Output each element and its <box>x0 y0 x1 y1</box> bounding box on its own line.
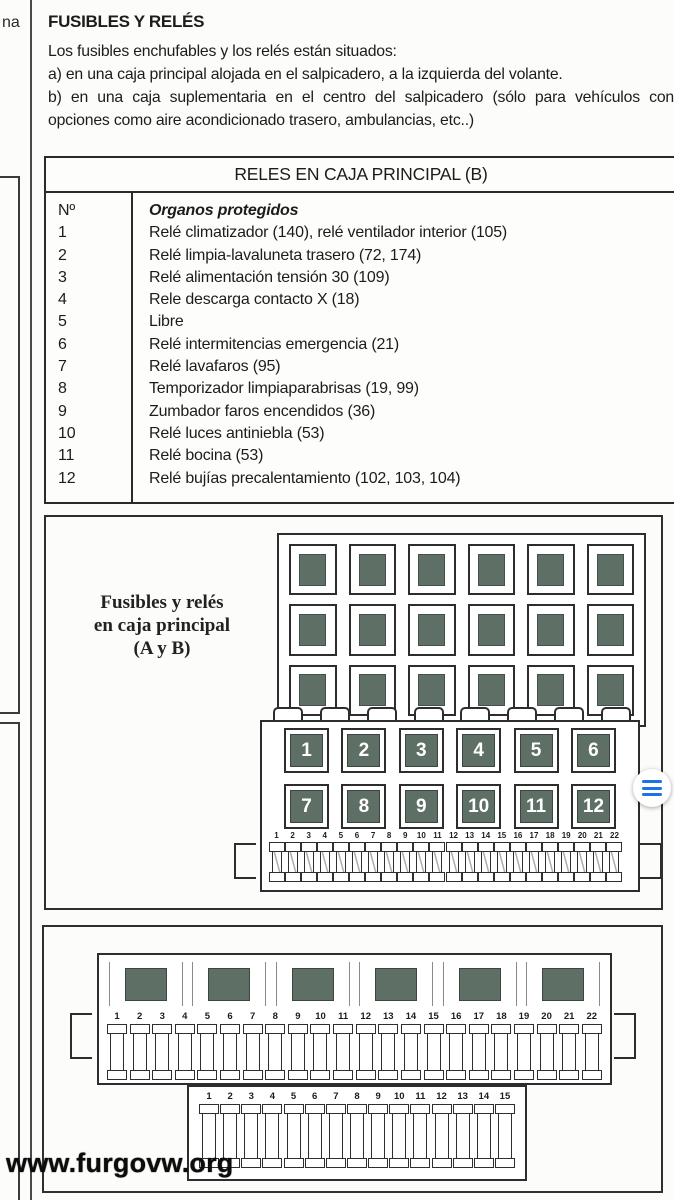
fuse-slot: 4 <box>317 831 332 882</box>
relay-slot: 10 <box>456 784 501 829</box>
relay-block-b: 123456 789101112 1 2 3 4 <box>260 720 640 892</box>
table-row: 5 Libre <box>46 311 674 333</box>
table-row: 7 Relé lavafaros (95) <box>46 356 674 378</box>
fuse-icon <box>415 842 427 882</box>
fuse-slot: 11 <box>430 831 445 882</box>
fuse-slot: 18 <box>543 831 558 882</box>
fuse-icon <box>403 1024 419 1080</box>
fuse-icon <box>539 1024 555 1080</box>
fuse-slot: 22 <box>582 1011 602 1080</box>
left-column-box-fragment <box>0 176 20 714</box>
relay-description-cell: Relé bujías precalentamiento (102, 103, … <box>131 468 674 490</box>
diagram-caption: Fusibles y relés en caja principal (A y … <box>66 591 258 660</box>
fuse-icon <box>245 1024 261 1080</box>
fuse-slot: 7 <box>243 1011 263 1080</box>
relay-number-cell: 12 <box>46 468 131 490</box>
fuse-slot: 6 <box>220 1011 240 1080</box>
fuse-slot: 10 <box>389 1091 409 1168</box>
mount-bracket-right <box>640 843 662 879</box>
fuse-icon <box>512 842 524 882</box>
scanned-manual-page: na FUSIBLES Y RELÉS Los fusibles enchufa… <box>0 0 674 1200</box>
fuse-icon <box>380 1024 396 1080</box>
table-row: 12 Relé bujías precalentamiento (102, 10… <box>46 468 674 490</box>
mount-bracket-left <box>70 1013 92 1059</box>
intro-line: opciones como aire acondicionado trasero… <box>48 109 674 132</box>
fuse-slot: 4 <box>175 1011 195 1080</box>
fuse-slot: 1 <box>107 1011 127 1080</box>
fuse-slot: 14 <box>474 1091 494 1168</box>
fuse-slot: 12 <box>446 831 461 882</box>
section-title: FUSIBLES Y RELÉS <box>48 12 204 32</box>
fuse-icon <box>349 1104 365 1168</box>
fuse-slot: 16 <box>446 1011 466 1080</box>
relay-number-cell: 9 <box>46 401 131 423</box>
fuse-icon <box>312 1024 328 1080</box>
table-row: 4 Rele descarga contacto X (18) <box>46 289 674 311</box>
relay-description-cell: Relé luces antiniebla (53) <box>131 423 674 445</box>
fuse-icon <box>271 842 283 882</box>
relay-slot: 1 <box>284 728 329 773</box>
fuse-slot: 3 <box>301 831 316 882</box>
hamburger-menu-icon <box>642 780 662 783</box>
relay-description-cell: Relé limpia-lavaluneta trasero (72, 174) <box>131 245 674 267</box>
fuse-icon <box>544 842 556 882</box>
fuse-icon <box>290 1024 306 1080</box>
fuse-slot: 2 <box>130 1011 150 1080</box>
fuse-icon <box>351 842 363 882</box>
fuse-strip-unit-upper: 1 2 3 4 5 6 7 <box>97 953 612 1085</box>
relay-number-cell: 7 <box>46 356 131 378</box>
fuse-slot: 5 <box>284 1091 304 1168</box>
fuse-slot: 3 <box>241 1091 261 1168</box>
relay-slot: 12 <box>571 784 616 829</box>
menu-fab-button[interactable] <box>633 769 671 807</box>
fuse-slot: 9 <box>288 1011 308 1080</box>
fuse-icon <box>434 1104 450 1168</box>
relay-slot: 6 <box>571 728 616 773</box>
fuse-icon <box>464 842 476 882</box>
column-divider-line <box>30 0 32 1200</box>
fuse-slot: 15 <box>424 1011 444 1080</box>
fuse-icon <box>480 842 492 882</box>
fuse-slot: 13 <box>453 1091 473 1168</box>
relay-description-cell: Relé climatizador (140), relé ventilador… <box>131 222 674 244</box>
fuse-slot: 8 <box>265 1011 285 1080</box>
relay-description-cell: Relé bocina (53) <box>131 445 674 467</box>
relay-number-cell: 2 <box>46 245 131 267</box>
relay-number-cell: 6 <box>46 334 131 356</box>
fuse-icon <box>426 1024 442 1080</box>
fuse-slot: 14 <box>478 831 493 882</box>
relay-slot: 7 <box>284 784 329 829</box>
fuse-slot: 9 <box>368 1091 388 1168</box>
fuse-icon <box>560 842 572 882</box>
fuse-icon <box>448 842 460 882</box>
fuse-icon <box>561 1024 577 1080</box>
fuse-icon <box>431 842 443 882</box>
fuse-slot: 8 <box>382 831 397 882</box>
fuse-icon <box>287 842 299 882</box>
relay-number-cell: 4 <box>46 289 131 311</box>
fuse-slot: 19 <box>514 1011 534 1080</box>
fuse-icon <box>476 1104 492 1168</box>
fuse-icon <box>497 1104 513 1168</box>
fuse-slot: 5 <box>197 1011 217 1080</box>
mount-bracket-right <box>614 1013 636 1059</box>
relay-number-cell: 11 <box>46 445 131 467</box>
fuse-icon <box>307 1104 323 1168</box>
fuse-icon <box>132 1024 148 1080</box>
left-column-cropped-text: na <box>2 14 20 32</box>
fuse-icon <box>264 1104 280 1168</box>
relay-slot: 3 <box>399 728 444 773</box>
fuse-slot: 7 <box>326 1091 346 1168</box>
fuse-slot: 10 <box>310 1011 330 1080</box>
fuse-icon <box>493 1024 509 1080</box>
fuse-slot: 10 <box>414 831 429 882</box>
fuse-icon <box>267 1024 283 1080</box>
fuse-slot: 13 <box>462 831 477 882</box>
fuse-slot: 3 <box>152 1011 172 1080</box>
fuse-slot: 12 <box>356 1011 376 1080</box>
relay-number-cell: 1 <box>46 222 131 244</box>
fuse-icon <box>528 842 540 882</box>
fuse-strip-main: 1 2 3 4 5 6 7 <box>269 831 622 882</box>
relay-description-cell: Rele descarga contacto X (18) <box>131 289 674 311</box>
relay-number-cell: 3 <box>46 267 131 289</box>
fuse-slot: 14 <box>401 1011 421 1080</box>
fuse-slot: 13 <box>378 1011 398 1080</box>
table-row: 8 Temporizador limpiaparabrisas (19, 99) <box>46 378 674 400</box>
fuse-slot: 8 <box>347 1091 367 1168</box>
fuse-slot: 21 <box>559 1011 579 1080</box>
fuse-icon <box>328 1104 344 1168</box>
table-row: 3 Relé alimentación tensión 30 (109) <box>46 267 674 289</box>
fuse-slot: 11 <box>410 1091 430 1168</box>
fuse-slot: 21 <box>591 831 606 882</box>
table-column-divider <box>131 193 133 502</box>
fuse-icon <box>303 842 315 882</box>
relay-slot: 11 <box>514 784 559 829</box>
fuse-slot: 19 <box>559 831 574 882</box>
relay-table: RELES EN CAJA PRINCIPAL (B) Nº Organos p… <box>44 156 674 504</box>
fuse-strip-unit-lower: 1 2 3 4 5 6 7 <box>187 1085 527 1181</box>
table-row: 9 Zumbador faros encendidos (36) <box>46 401 674 423</box>
fuse-icon <box>455 1104 471 1168</box>
table-rows: 1 Relé climatizador (140), relé ventilad… <box>46 222 674 490</box>
fuse-icon <box>109 1024 125 1080</box>
table-row: 10 Relé luces antiniebla (53) <box>46 423 674 445</box>
fuse-icon <box>383 842 395 882</box>
relay-block-a <box>277 533 646 727</box>
fuse-slot: 2 <box>285 831 300 882</box>
fuse-icon <box>286 1104 302 1168</box>
fuse-slot: 18 <box>491 1011 511 1080</box>
column-header-number: Nº <box>46 200 131 222</box>
fuse-slot: 7 <box>366 831 381 882</box>
fuse-icon <box>154 1024 170 1080</box>
fuse-icon <box>358 1024 374 1080</box>
intro-line: Los fusibles enchufables y los relés est… <box>48 40 674 63</box>
fuse-slot: 4 <box>262 1091 282 1168</box>
fuse-slot: 16 <box>510 831 525 882</box>
intro-line: a) en una caja principal alojada en el s… <box>48 63 674 86</box>
fuse-slot: 17 <box>469 1011 489 1080</box>
fuse-icon <box>335 1024 351 1080</box>
watermark-url: www.furgovw.org <box>6 1148 234 1179</box>
fuse-slot: 20 <box>537 1011 557 1080</box>
relay-number-cell: 10 <box>46 423 131 445</box>
fuse-icon <box>319 842 331 882</box>
fuse-slot: 5 <box>333 831 348 882</box>
relay-table-body: Nº Organos protegidos 1 Relé climatizado… <box>46 193 674 502</box>
fuse-slot: 1 <box>269 831 284 882</box>
fuse-icon <box>592 842 604 882</box>
fuse-icon <box>222 1024 238 1080</box>
relay-slot: 2 <box>341 728 386 773</box>
table-row: 11 Relé bocina (53) <box>46 445 674 467</box>
relay-description-cell: Zumbador faros encendidos (36) <box>131 401 674 423</box>
fuse-icon <box>367 842 379 882</box>
relay-slot: 8 <box>341 784 386 829</box>
fuse-icon <box>335 842 347 882</box>
fuse-icon <box>399 842 411 882</box>
fuse-slot: 12 <box>432 1091 452 1168</box>
fuse-slot: 6 <box>349 831 364 882</box>
relay-slot: 9 <box>399 784 444 829</box>
table-row: 1 Relé climatizador (140), relé ventilad… <box>46 222 674 244</box>
intro-paragraph: Los fusibles enchufables y los relés est… <box>48 40 674 132</box>
numbered-relay-row-1: 123456 <box>262 728 638 773</box>
fuse-slot: 6 <box>305 1091 325 1168</box>
numbered-relay-row-2: 789101112 <box>262 784 638 829</box>
relay-description-cell: Libre <box>131 311 674 333</box>
relay-row <box>109 962 600 1006</box>
table-header-row: Nº Organos protegidos <box>46 200 674 222</box>
fuse-slot: 17 <box>527 831 542 882</box>
interlocking-tabs <box>265 706 639 720</box>
fuse-icon <box>370 1104 386 1168</box>
relay-number-cell: 5 <box>46 311 131 333</box>
fuse-icon <box>199 1024 215 1080</box>
fuse-strip-22: 1 2 3 4 5 6 7 <box>107 1011 602 1080</box>
relay-table-title: RELES EN CAJA PRINCIPAL (B) <box>46 158 674 193</box>
fuse-slot: 11 <box>333 1011 353 1080</box>
relay-description-cell: Relé alimentación tensión 30 (109) <box>131 267 674 289</box>
fuse-icon <box>177 1024 193 1080</box>
relay-slot: 4 <box>456 728 501 773</box>
relay-description-cell: Relé lavafaros (95) <box>131 356 674 378</box>
fuse-icon <box>391 1104 407 1168</box>
table-row: 2 Relé limpia-lavaluneta trasero (72, 17… <box>46 245 674 267</box>
fuse-icon <box>516 1024 532 1080</box>
fuse-slot: 9 <box>398 831 413 882</box>
column-header-organs: Organos protegidos <box>131 200 674 222</box>
fuse-icon <box>448 1024 464 1080</box>
left-column-box-fragment <box>0 722 20 1200</box>
relay-slot: 5 <box>514 728 559 773</box>
fuse-icon <box>471 1024 487 1080</box>
relay-description-cell: Temporizador limpiaparabrisas (19, 99) <box>131 378 674 400</box>
fuse-slot: 15 <box>494 831 509 882</box>
mount-bracket-left <box>234 843 256 879</box>
table-row: 6 Relé intermitencias emergencia (21) <box>46 334 674 356</box>
fuse-strip-15: 1 2 3 4 5 6 7 <box>199 1091 515 1168</box>
relay-description-cell: Relé intermitencias emergencia (21) <box>131 334 674 356</box>
fuse-slot: 20 <box>575 831 590 882</box>
fuse-slot: 22 <box>607 831 622 882</box>
intro-line: b) en una caja suplementaria en el centr… <box>48 86 674 109</box>
fuse-slot: 15 <box>495 1091 515 1168</box>
diagram-main-fusebox: Fusibles y relés en caja principal (A y … <box>44 515 663 910</box>
fuse-icon <box>412 1104 428 1168</box>
fuse-icon <box>243 1104 259 1168</box>
fuse-icon <box>576 842 588 882</box>
fuse-icon <box>584 1024 600 1080</box>
fuse-icon <box>608 842 620 882</box>
relay-number-cell: 8 <box>46 378 131 400</box>
fuse-icon <box>496 842 508 882</box>
